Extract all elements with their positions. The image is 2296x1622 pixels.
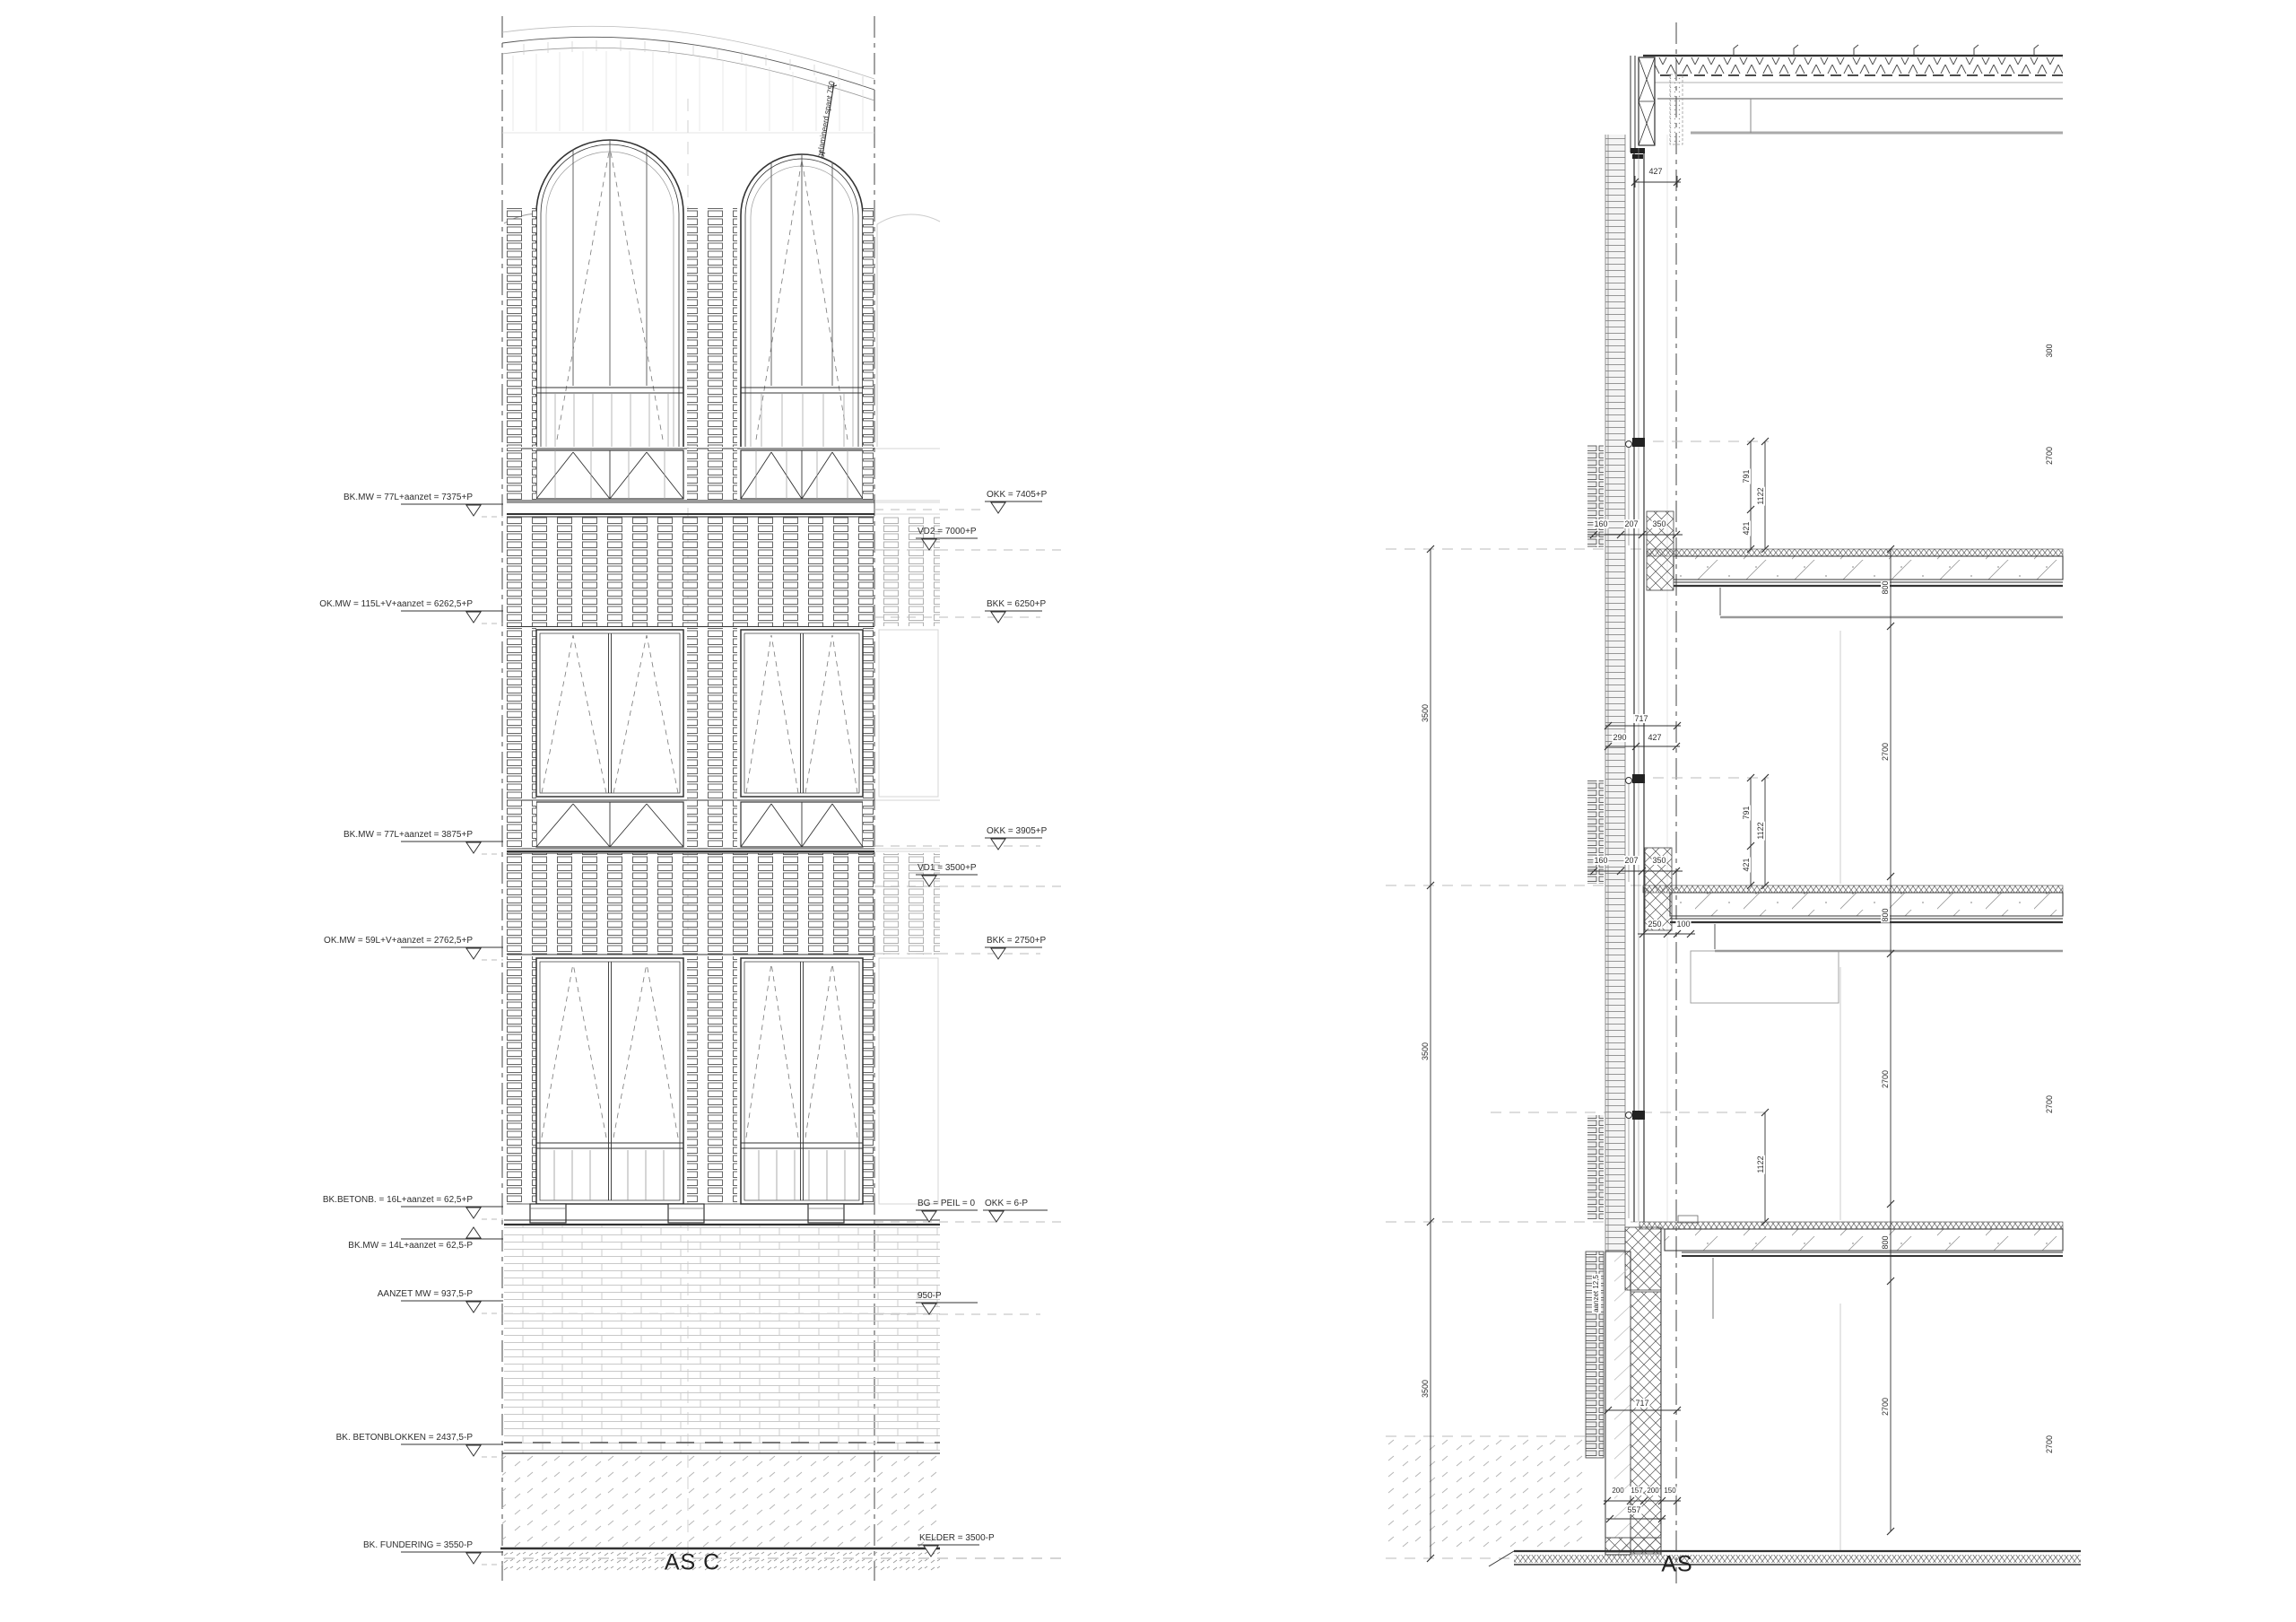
elevation-drawing xyxy=(401,16,1063,1581)
level-label-bk-mw-625: BK.MW = 14L+aanzet = 62,5-P xyxy=(204,1241,473,1251)
dim-2700-c: 2700 xyxy=(1881,1397,1890,1417)
dim-2700-a: 2700 xyxy=(1881,742,1890,762)
level-label-betonblokken: BK. BETONBLOKKEN = 2437,5-P xyxy=(204,1433,473,1443)
level-label-aanzet-mw: AANZET MW = 937,5-P xyxy=(204,1289,473,1299)
dim-300-edge: 300 xyxy=(2045,343,2054,358)
dim-350-a: 350 xyxy=(1651,519,1666,528)
dim-250: 250 xyxy=(1647,920,1662,929)
level-label-fundering: BK. FUNDERING = 3550-P xyxy=(204,1540,473,1550)
level-label-ok-mw-2762: OK.MW = 59L+V+aanzet = 2762,5+P xyxy=(204,936,473,946)
level-label-bk-mw-7375: BK.MW = 77L+aanzet = 7375+P xyxy=(204,493,473,502)
dim-2700-edge-c: 2700 xyxy=(2045,1435,2054,1454)
level-label-okk-3905: OKK = 3905+P xyxy=(987,826,1047,836)
dim-791-a: 791 xyxy=(1742,468,1751,484)
level-label-okk-7405: OKK = 7405+P xyxy=(987,490,1047,500)
dim-421-b: 421 xyxy=(1742,857,1751,872)
dim-800-a: 800 xyxy=(1881,580,1890,595)
dim-421-a: 421 xyxy=(1742,520,1751,536)
dim-3500-a: 3500 xyxy=(1421,703,1430,723)
dim-2700-edge-a: 2700 xyxy=(2045,446,2054,466)
level-label-bg-peil: BG = PEIL = 0 xyxy=(918,1199,975,1208)
dim-350-b: 350 xyxy=(1651,856,1666,865)
dim-717-mid: 717 xyxy=(1633,714,1648,723)
dim-100: 100 xyxy=(1675,920,1691,929)
level-label-okk-6p: OKK = 6-P xyxy=(985,1199,1028,1208)
level-label-ok-mw-6262: OK.MW = 115L+V+aanzet = 6262,5+P xyxy=(204,599,473,609)
level-label-vd1: VD1 = 3500+P xyxy=(918,863,977,873)
level-label-bk-mw-3875: BK.MW = 77L+aanzet = 3875+P xyxy=(204,830,473,840)
dim-207-b: 207 xyxy=(1623,856,1639,865)
dim-2700-b: 2700 xyxy=(1881,1069,1890,1089)
level-label-vd2: VD2 = 7000+P xyxy=(918,527,977,536)
section-drawing xyxy=(1386,22,2081,1583)
dim-290: 290 xyxy=(1612,733,1627,742)
dim-3500-b: 3500 xyxy=(1421,1042,1430,1061)
dim-3500-c: 3500 xyxy=(1421,1379,1430,1399)
dim-800-b: 800 xyxy=(1881,907,1890,922)
dim-160-b: 160 xyxy=(1593,856,1608,865)
dim-207-a: 207 xyxy=(1623,519,1639,528)
dim-aanzet-125: aanzet 12,5 xyxy=(1592,1274,1601,1313)
level-label-bkk-6250: BKK = 6250+P xyxy=(987,599,1046,609)
drawing-canvas: BK.MW = 77L+aanzet = 7375+P OK.MW = 115L… xyxy=(0,0,2296,1622)
level-label-kelder: KELDER = 3500-P xyxy=(919,1533,995,1543)
dim-200-b: 200 xyxy=(1646,1487,1659,1496)
dim-791-b: 791 xyxy=(1742,805,1751,820)
dim-427-top: 427 xyxy=(1648,167,1663,176)
technical-drawing xyxy=(0,0,2296,1622)
dim-557: 557 xyxy=(1626,1505,1641,1514)
dim-1122-b: 1122 xyxy=(1756,821,1765,840)
dim-157: 157 xyxy=(1630,1487,1643,1496)
dim-427-mid: 427 xyxy=(1647,733,1662,742)
level-label-bk-betonb: BK.BETONB. = 16L+aanzet = 62,5+P xyxy=(204,1195,473,1205)
level-label-bkk-2750: BKK = 2750+P xyxy=(987,936,1046,946)
level-label-950p: 950-P xyxy=(918,1291,942,1301)
dim-200-a: 200 xyxy=(1611,1487,1624,1496)
dim-1122-c: 1122 xyxy=(1756,1155,1765,1173)
dim-717-base: 717 xyxy=(1634,1399,1649,1408)
dim-160-a: 160 xyxy=(1593,519,1608,528)
dim-1122-a: 1122 xyxy=(1756,486,1765,505)
axis-title-as: AS xyxy=(1661,1560,1692,1570)
dim-150: 150 xyxy=(1663,1487,1676,1496)
dim-800-c: 800 xyxy=(1881,1234,1890,1250)
axis-title-as-c: AS C xyxy=(665,1558,720,1568)
dim-2700-edge-b: 2700 xyxy=(2045,1094,2054,1114)
